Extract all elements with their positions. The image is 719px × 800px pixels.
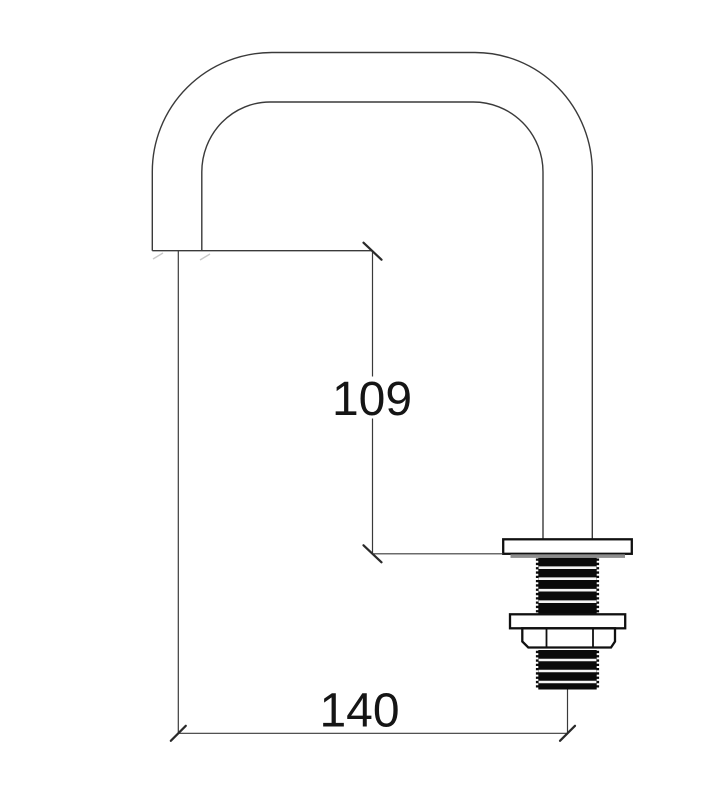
dim-109-label: 109 xyxy=(332,373,412,426)
flange-underside-shadow xyxy=(511,554,626,558)
mounting-flange xyxy=(503,539,632,554)
upper-thread-shank xyxy=(538,558,596,614)
hex-locknut xyxy=(522,628,615,647)
outlet-remnant-tick-left xyxy=(153,253,163,259)
locknut-washer xyxy=(510,614,625,628)
dim-140-label: 140 xyxy=(319,685,399,738)
outlet-remnant-tick-right xyxy=(200,254,210,260)
technical-drawing-page: 109 140 xyxy=(0,0,719,800)
faucet-spout-drawing: 109 140 xyxy=(0,0,719,800)
